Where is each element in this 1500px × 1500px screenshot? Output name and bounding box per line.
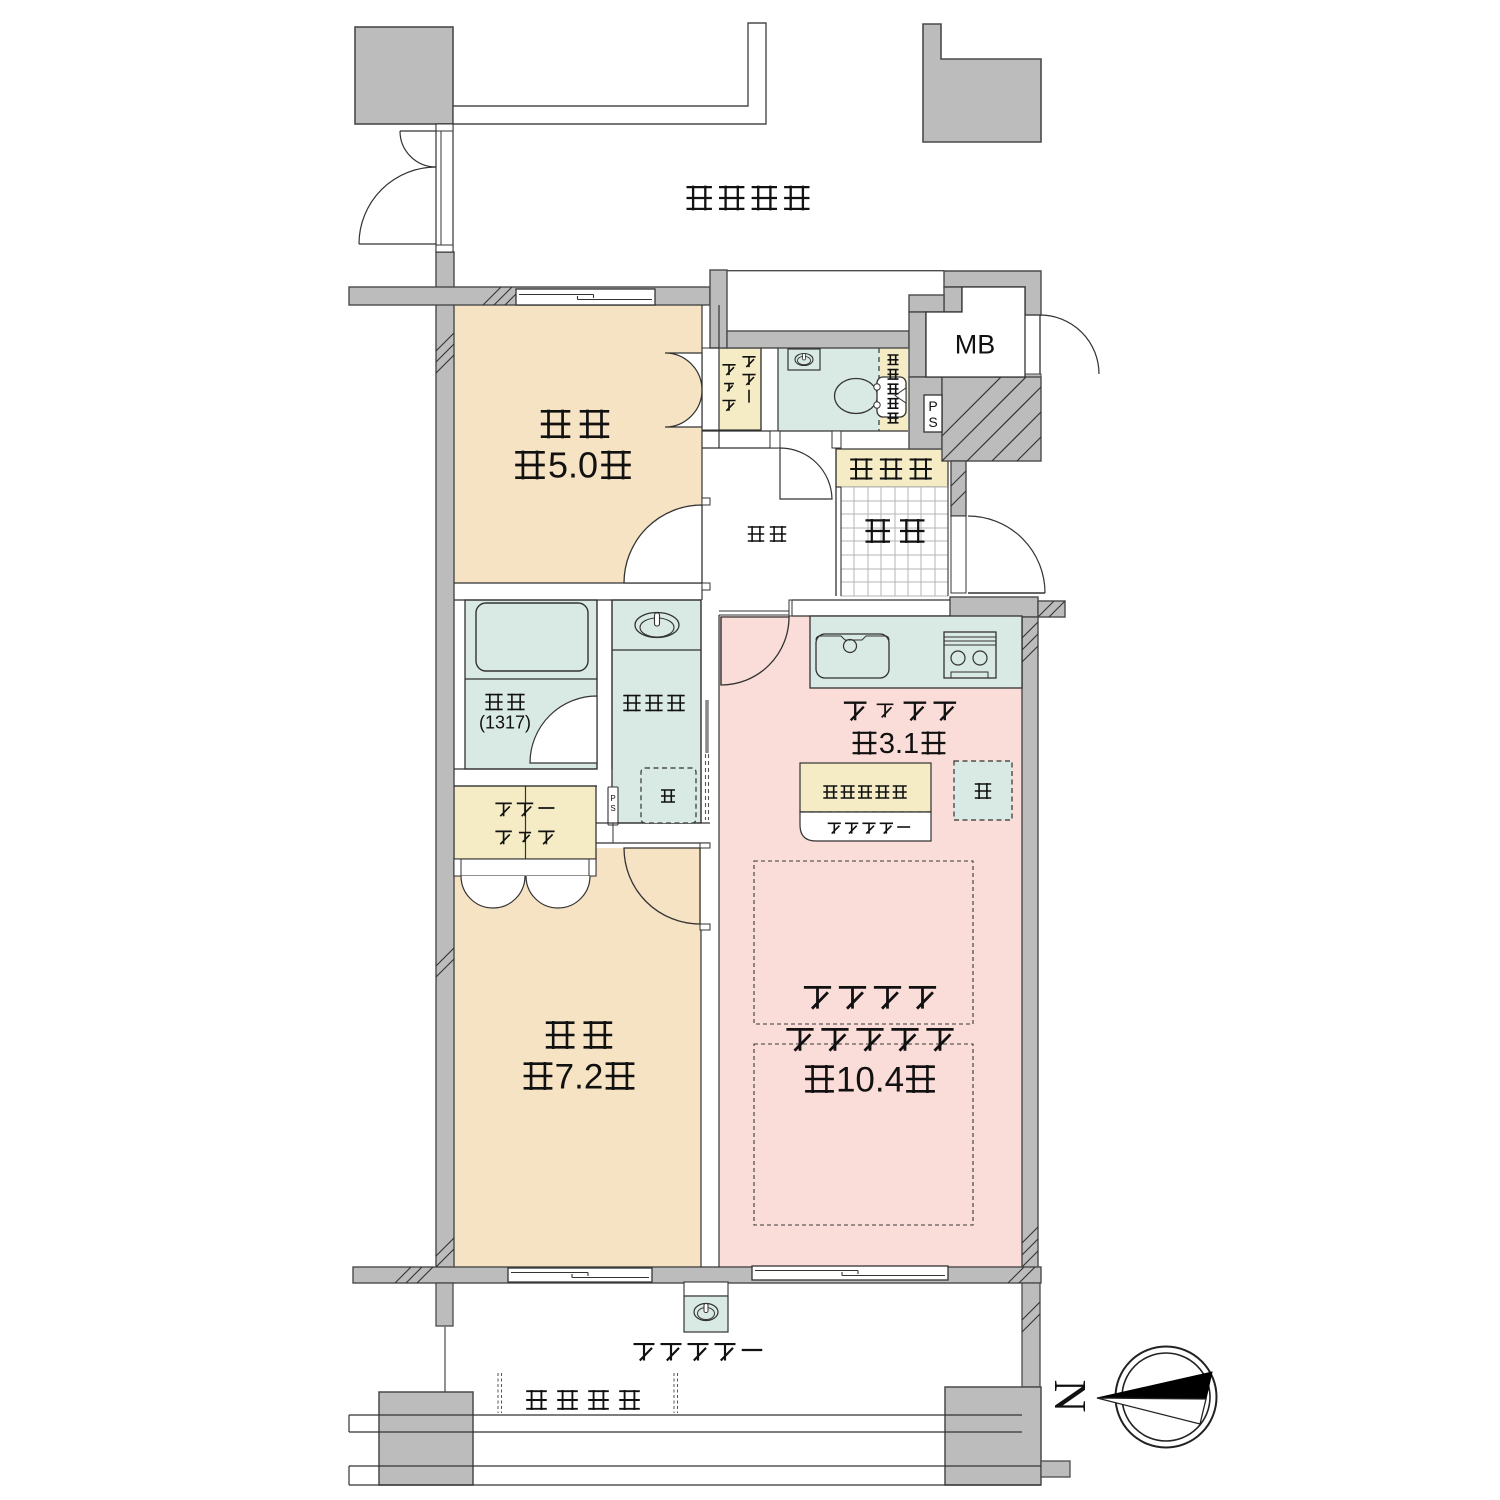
svg-text:N: N: [1045, 1379, 1096, 1412]
svg-text:5.0: 5.0: [548, 445, 598, 486]
svg-text:10.4: 10.4: [836, 1060, 904, 1099]
svg-text:7.2: 7.2: [555, 1057, 604, 1096]
svg-text:3.1: 3.1: [879, 728, 919, 760]
svg-text:P: P: [610, 794, 615, 803]
svg-text:S: S: [610, 804, 615, 813]
svg-text:(1317): (1317): [479, 712, 531, 732]
svg-text:P: P: [928, 398, 937, 414]
svg-text:S: S: [928, 414, 937, 430]
svg-text:MB: MB: [955, 329, 996, 359]
